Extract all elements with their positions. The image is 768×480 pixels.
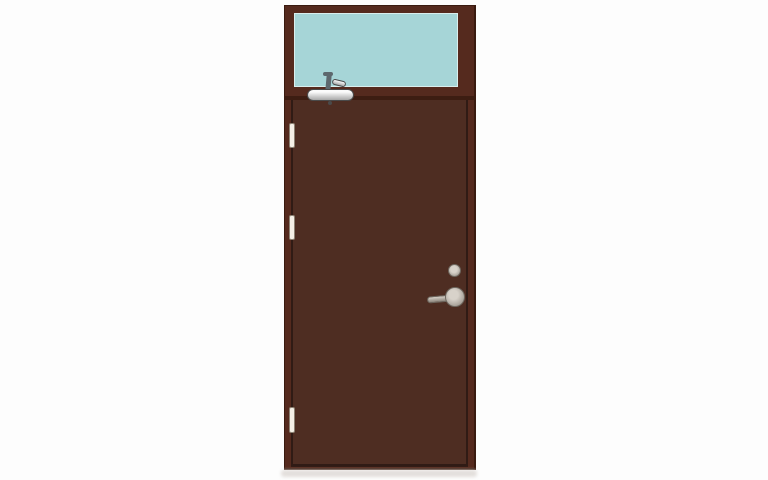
door-closer-screw [328, 101, 332, 105]
lever-handle-rosette [445, 287, 465, 307]
hinge-top [289, 123, 295, 148]
hinge-middle [289, 215, 295, 240]
door-leaf [291, 100, 468, 467]
lock-cylinder [448, 264, 461, 277]
transom-window-glass [294, 13, 458, 87]
product-image-canvas [0, 0, 768, 480]
door-closer-body [307, 89, 354, 101]
hinge-bottom [289, 407, 295, 433]
floor-shadow [281, 470, 477, 477]
door-assembly [284, 5, 476, 470]
